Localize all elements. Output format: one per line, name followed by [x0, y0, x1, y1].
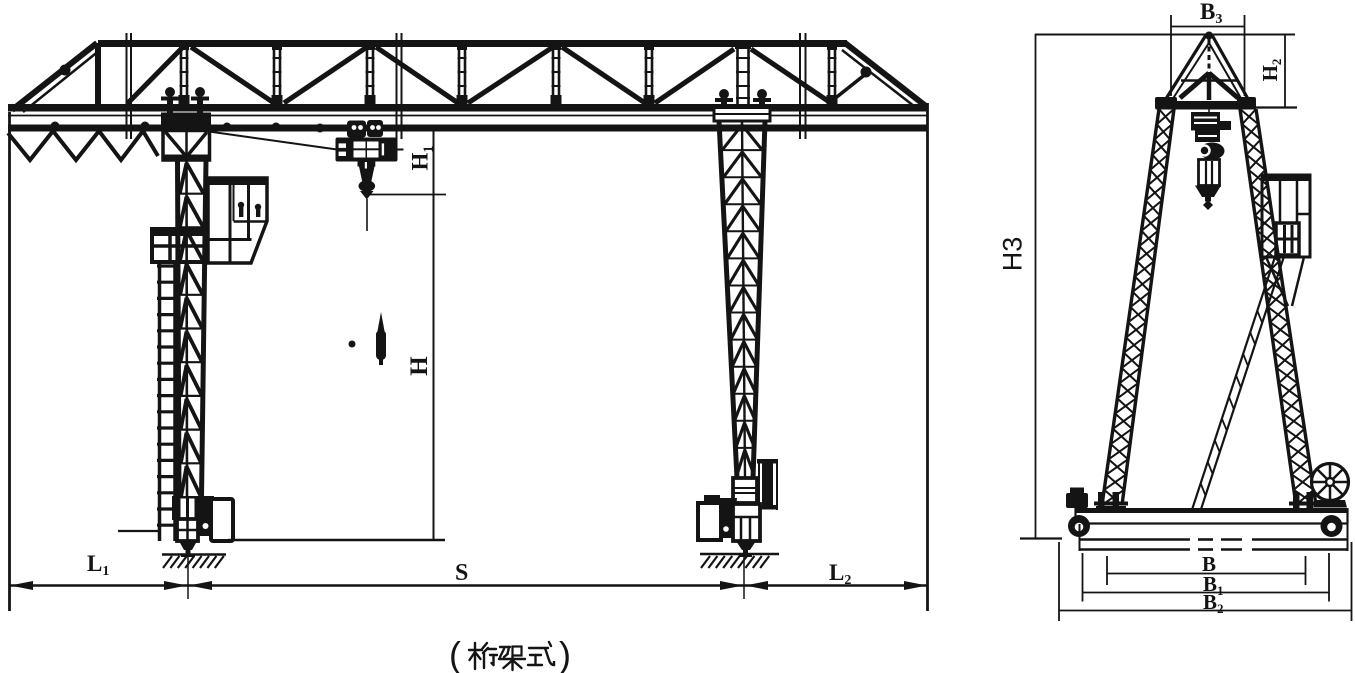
- svg-text:S: S: [455, 560, 468, 586]
- svg-text:H3: H3: [998, 237, 1028, 272]
- svg-text:H: H: [406, 356, 433, 376]
- svg-text:(: (: [449, 634, 461, 673]
- svg-text:): ): [559, 634, 571, 673]
